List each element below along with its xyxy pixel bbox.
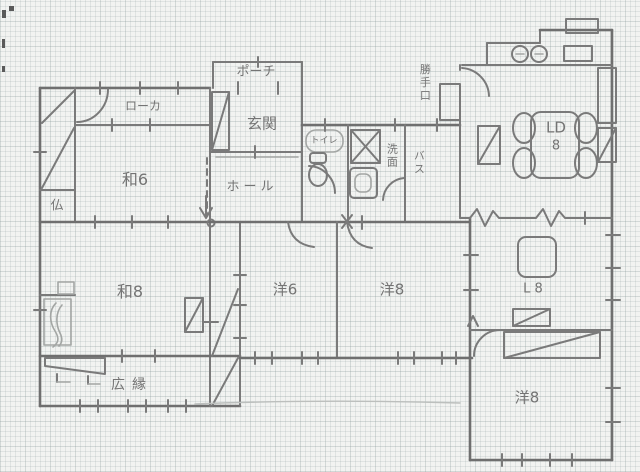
room-label-roka: ローカ [125,100,161,114]
living-table-icon [518,237,556,277]
room-label-wa8: 和8 [117,283,143,301]
room-label-yo8-center: 洋8 [380,281,405,298]
room-label-ld: LD 8 [546,119,566,154]
stairs-icon [504,309,600,358]
sanitary-walls [210,125,470,222]
veranda-step [45,358,105,384]
room-label-porch: ポーチ [236,66,275,81]
room-label-butsu: 仏 [50,200,63,215]
door-arcs-center [288,215,372,248]
room-label-hall: ホール [226,181,277,196]
floorplan-drawing [0,0,640,472]
closet-boxes-center [185,289,238,406]
room-label-hiroen: 広縁 [111,377,153,393]
stray-pencil-line [195,401,460,404]
stove-icon [564,46,592,61]
room-label-wa6: 和6 [122,171,148,189]
center-room-walls [240,218,472,460]
floorplan-page: ポーチ 玄関 ローカ 和6 仏 ホール トイレ 洗面 バス 勝手口 LD 8 L… [0,0,640,472]
door-arc-corridor [77,89,108,122]
room-label-senmen: 洗面 [385,143,398,169]
hall-features [200,158,215,227]
room-label-bath: バス [412,150,425,176]
washing-machine-icon [351,130,380,163]
room-label-genkan: 玄関 [247,115,277,132]
door-arc-bath [383,178,404,200]
door-arc-yo6 [288,222,314,247]
entrance-walls [210,57,302,222]
backdoor-step [440,84,460,120]
label-katteguchi: 勝手口 [418,64,431,103]
room-label-ld-line1: LD [546,118,566,136]
door-arc-south-room [468,316,500,356]
room-label-ld-line2: 8 [552,139,560,154]
back-door [440,68,489,120]
room-label-yo8-south: 洋8 [515,389,540,406]
room-label-yo6: 洋6 [273,281,298,298]
room-label-l8: L 8 [523,283,543,298]
door-arc-backdoor [462,68,489,96]
scan-artifacts [2,6,14,72]
room-label-toilet: トイレ [310,136,337,146]
door-arc-toilet [309,166,335,193]
washbasin-icon [350,168,377,198]
open-boundary-zigzag [470,209,612,226]
tokonoma-ornament-icon [44,299,71,347]
